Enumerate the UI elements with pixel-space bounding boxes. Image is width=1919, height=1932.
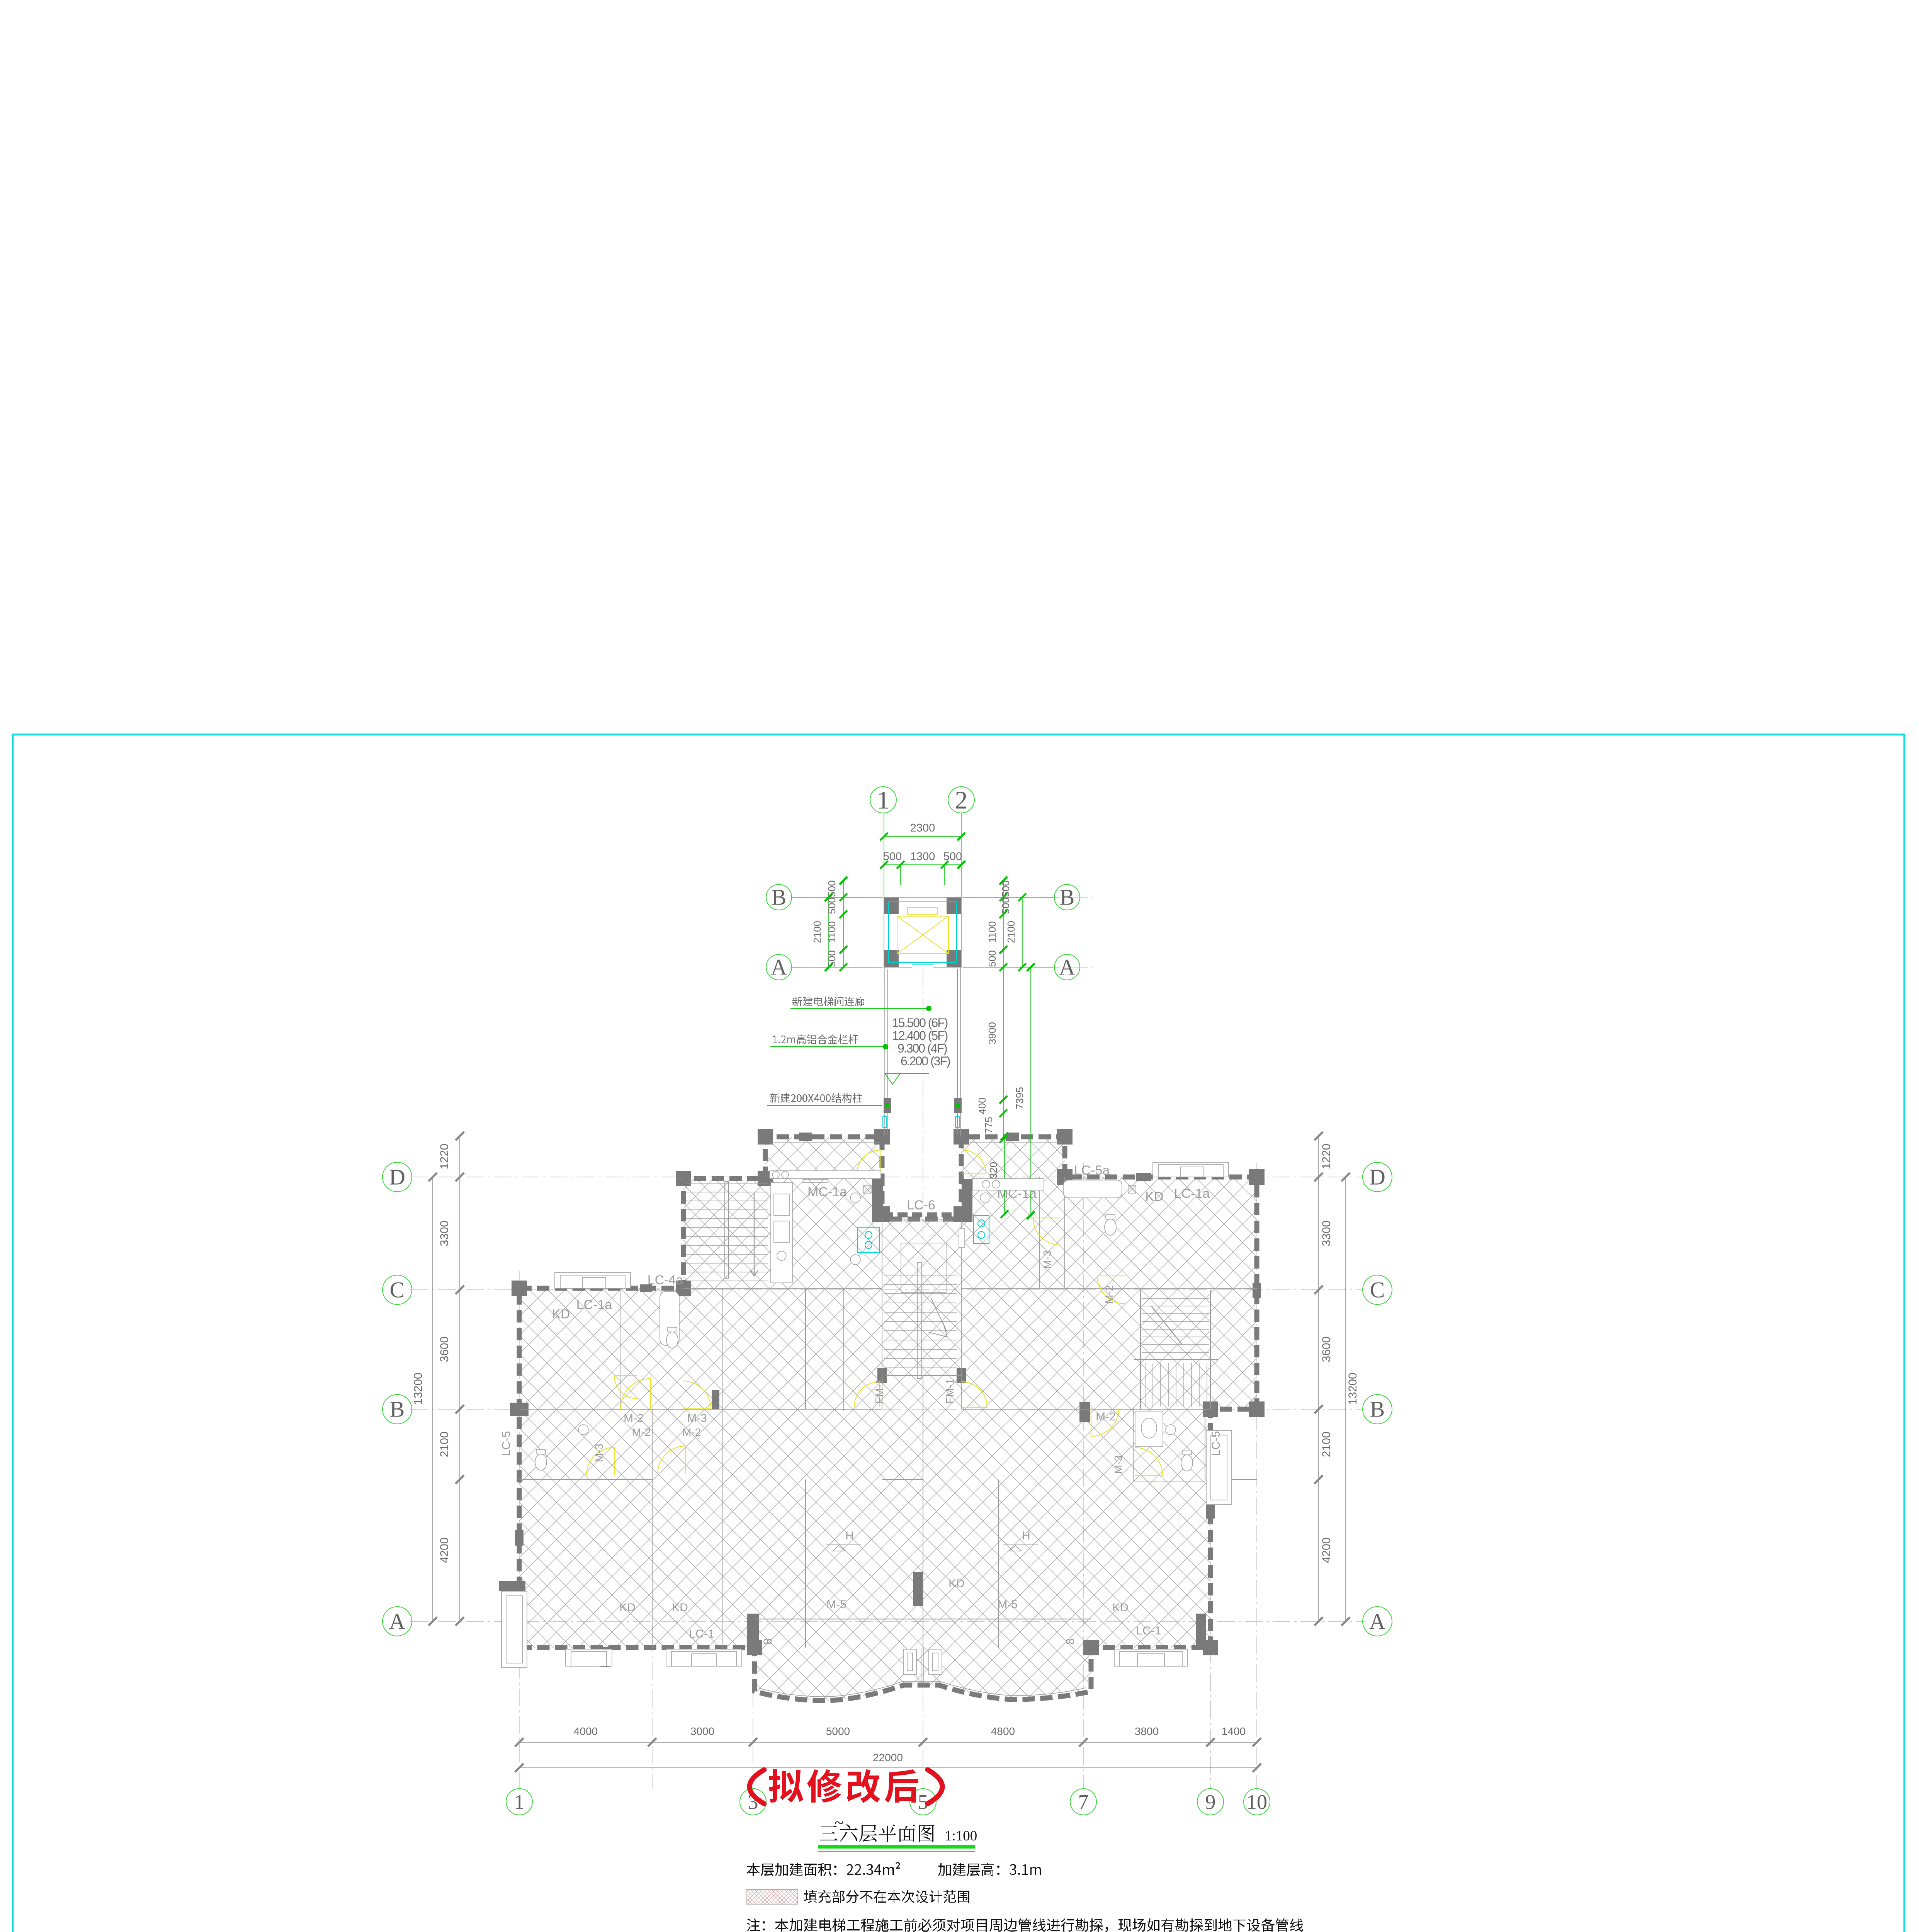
svg-text:3000: 3000 xyxy=(690,1725,714,1737)
svg-text:FM-1: FM-1 xyxy=(873,1378,885,1403)
svg-text:500: 500 xyxy=(943,850,962,863)
svg-text:MC-1a: MC-1a xyxy=(807,1185,847,1199)
svg-text:LC-1: LC-1 xyxy=(1136,1624,1161,1637)
svg-text:775: 775 xyxy=(983,1117,994,1133)
svg-text:1: 1 xyxy=(514,1790,525,1813)
svg-text:B: B xyxy=(390,1397,405,1422)
svg-text:3600: 3600 xyxy=(1320,1337,1333,1362)
svg-text:C: C xyxy=(390,1277,405,1303)
svg-text:8: 8 xyxy=(1064,1638,1077,1645)
svg-text:M-3: M-3 xyxy=(687,1412,707,1425)
svg-text:5000: 5000 xyxy=(826,1725,850,1737)
svg-text:500: 500 xyxy=(826,897,838,914)
svg-text:9: 9 xyxy=(1205,1790,1216,1813)
svg-text:C: C xyxy=(1370,1277,1385,1303)
svg-text:2100: 2100 xyxy=(1005,921,1017,943)
svg-text:M-3: M-3 xyxy=(593,1444,605,1462)
svg-text:KD: KD xyxy=(672,1601,688,1614)
svg-text:M-2: M-2 xyxy=(632,1426,651,1438)
svg-text:3300: 3300 xyxy=(438,1221,451,1247)
svg-text:M-3: M-3 xyxy=(1112,1455,1124,1474)
svg-text:M-2: M-2 xyxy=(1103,1285,1115,1304)
svg-text:500: 500 xyxy=(1000,880,1011,897)
svg-text:3800: 3800 xyxy=(1135,1725,1159,1737)
svg-text:2300: 2300 xyxy=(910,822,935,834)
svg-text:500: 500 xyxy=(826,950,838,967)
svg-text:500: 500 xyxy=(986,950,998,967)
svg-text:B: B xyxy=(1060,885,1075,910)
svg-text:10: 10 xyxy=(1246,1790,1267,1813)
svg-text:4200: 4200 xyxy=(438,1537,451,1563)
svg-text:4800: 4800 xyxy=(991,1725,1015,1737)
svg-text:3900: 3900 xyxy=(986,1022,998,1044)
svg-text:500: 500 xyxy=(883,850,902,863)
svg-text:KD: KD xyxy=(552,1307,570,1321)
svg-text:1:100: 1:100 xyxy=(945,1828,977,1844)
svg-text:B: B xyxy=(1370,1397,1385,1422)
svg-text:3300: 3300 xyxy=(1320,1221,1333,1247)
svg-text:1100: 1100 xyxy=(986,921,998,943)
svg-text:M-5: M-5 xyxy=(826,1598,846,1611)
svg-text:D: D xyxy=(389,1165,405,1190)
svg-text:M-2: M-2 xyxy=(624,1412,644,1425)
svg-text:400: 400 xyxy=(976,1097,988,1114)
svg-text:M-2: M-2 xyxy=(1096,1410,1116,1423)
svg-text:4000: 4000 xyxy=(574,1725,598,1737)
svg-text:3600: 3600 xyxy=(438,1337,451,1362)
svg-text:22000: 22000 xyxy=(873,1752,903,1764)
svg-text:1220: 1220 xyxy=(438,1144,451,1170)
svg-text:1100: 1100 xyxy=(826,921,838,943)
svg-text:A: A xyxy=(1369,1609,1385,1634)
svg-text:LC-1a: LC-1a xyxy=(1174,1186,1210,1201)
svg-text:2: 2 xyxy=(955,786,968,814)
svg-text:M-3: M-3 xyxy=(1041,1250,1053,1269)
svg-text:2100: 2100 xyxy=(438,1432,451,1458)
svg-text:KD: KD xyxy=(948,1577,965,1590)
svg-text:H: H xyxy=(1022,1529,1030,1542)
svg-text:A: A xyxy=(389,1609,405,1634)
svg-text:KD: KD xyxy=(1112,1601,1129,1614)
svg-text:1220: 1220 xyxy=(1320,1144,1333,1170)
svg-text:9.300 (4F): 9.300 (4F) xyxy=(897,1041,947,1055)
svg-text:M-2: M-2 xyxy=(682,1426,701,1438)
svg-text:6.200 (3F): 6.200 (3F) xyxy=(901,1054,950,1068)
svg-text:KD: KD xyxy=(619,1601,636,1614)
svg-text:1300: 1300 xyxy=(910,850,935,863)
svg-text:15.500 (6F): 15.500 (6F) xyxy=(892,1016,948,1030)
svg-text:7: 7 xyxy=(1078,1790,1089,1813)
svg-text:8: 8 xyxy=(761,1638,774,1645)
svg-text:1: 1 xyxy=(877,786,890,814)
svg-text:LC-5a: LC-5a xyxy=(1074,1163,1110,1178)
svg-text:LC-5: LC-5 xyxy=(1210,1431,1222,1456)
svg-text:M-5: M-5 xyxy=(998,1598,1018,1611)
svg-text:4200: 4200 xyxy=(1320,1537,1333,1563)
svg-text:12.400 (5F): 12.400 (5F) xyxy=(892,1029,948,1043)
svg-text:LC-1a: LC-1a xyxy=(576,1298,612,1312)
svg-text:LC-6: LC-6 xyxy=(907,1198,935,1213)
svg-text:13200: 13200 xyxy=(1346,1372,1359,1405)
svg-text:13200: 13200 xyxy=(412,1372,425,1405)
svg-text:FM-1: FM-1 xyxy=(944,1378,956,1403)
svg-text:7395: 7395 xyxy=(1014,1087,1025,1109)
svg-text:H: H xyxy=(845,1529,854,1542)
svg-text:LC-1: LC-1 xyxy=(689,1628,714,1640)
svg-text:2100: 2100 xyxy=(1320,1432,1333,1458)
svg-text:1400: 1400 xyxy=(1222,1725,1246,1737)
svg-text:2100: 2100 xyxy=(811,921,823,943)
svg-text:500: 500 xyxy=(1000,897,1011,914)
svg-text:KD: KD xyxy=(1145,1189,1163,1204)
svg-text:LC-4a: LC-4a xyxy=(648,1273,683,1287)
svg-text:D: D xyxy=(1369,1165,1385,1190)
svg-text:A: A xyxy=(771,955,787,980)
svg-text:A: A xyxy=(1059,955,1075,980)
svg-text:B: B xyxy=(772,885,787,910)
svg-text:LC-5: LC-5 xyxy=(500,1431,513,1456)
svg-text:500: 500 xyxy=(826,880,838,897)
